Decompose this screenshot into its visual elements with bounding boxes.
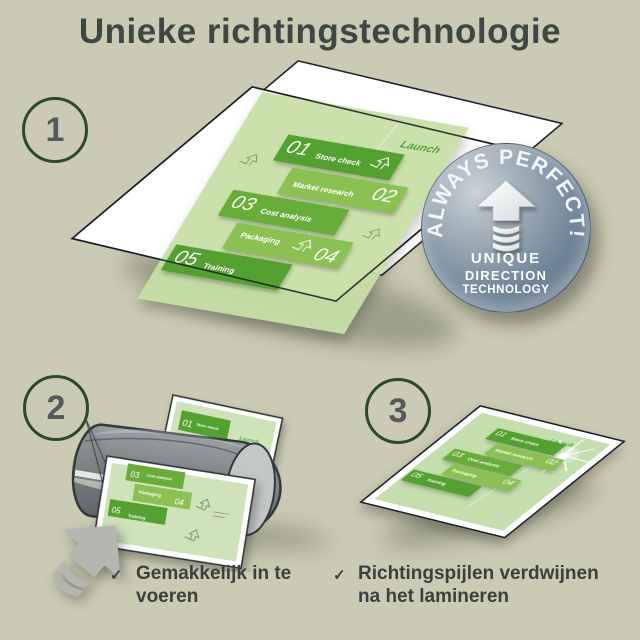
caption-step3: Richtingspijlen verdwijnen na het lamine… [358, 562, 620, 608]
always-perfect-badge: ALWAYS PERFECT! UNIQUE DIRECTION TECHNOL… [421, 143, 591, 313]
feed-direction-arrow-icon [30, 512, 140, 612]
result-bar-01-label: Store check [508, 437, 540, 448]
step-3-badge: 3 [365, 378, 431, 444]
result-bar-01-number: 01 [493, 430, 511, 439]
checkmark-icon: ✓ [110, 566, 123, 584]
step-1-badge: 1 [22, 97, 88, 163]
badge-line-technology: TECHNOLOGY [422, 284, 590, 298]
step-1-number: 1 [46, 111, 65, 150]
caption-step2: Gemakkelijk in te voeren [136, 562, 311, 608]
result-bar-03-number: 03 [449, 450, 467, 459]
result-bar-05-label: Training [424, 478, 448, 486]
page-title: Unieke richtingstechnologie [0, 12, 640, 52]
result-bar-04-number: 04 [500, 478, 518, 487]
badge-line-direction: DIRECTION [422, 268, 590, 284]
step-3-number: 3 [389, 392, 408, 431]
checkmark-icon: ✓ [333, 566, 346, 584]
badge-line-unique: UNIQUE [422, 250, 590, 268]
badge-up-arrow-icon [475, 180, 537, 252]
result-bar-02-number: 02 [543, 458, 561, 467]
infographic-canvas: Unieke richtingstechnologie 1 Launch 01 [0, 0, 640, 640]
result-bar-05-number: 05 [408, 471, 426, 480]
result-bar-03-label: Cost analysis [465, 457, 501, 468]
mini-bar-01-number: 01 [181, 418, 193, 430]
badge-text-block: UNIQUE DIRECTION TECHNOLOGY [422, 250, 590, 297]
result-bar-04-label: Packaging [449, 469, 478, 479]
